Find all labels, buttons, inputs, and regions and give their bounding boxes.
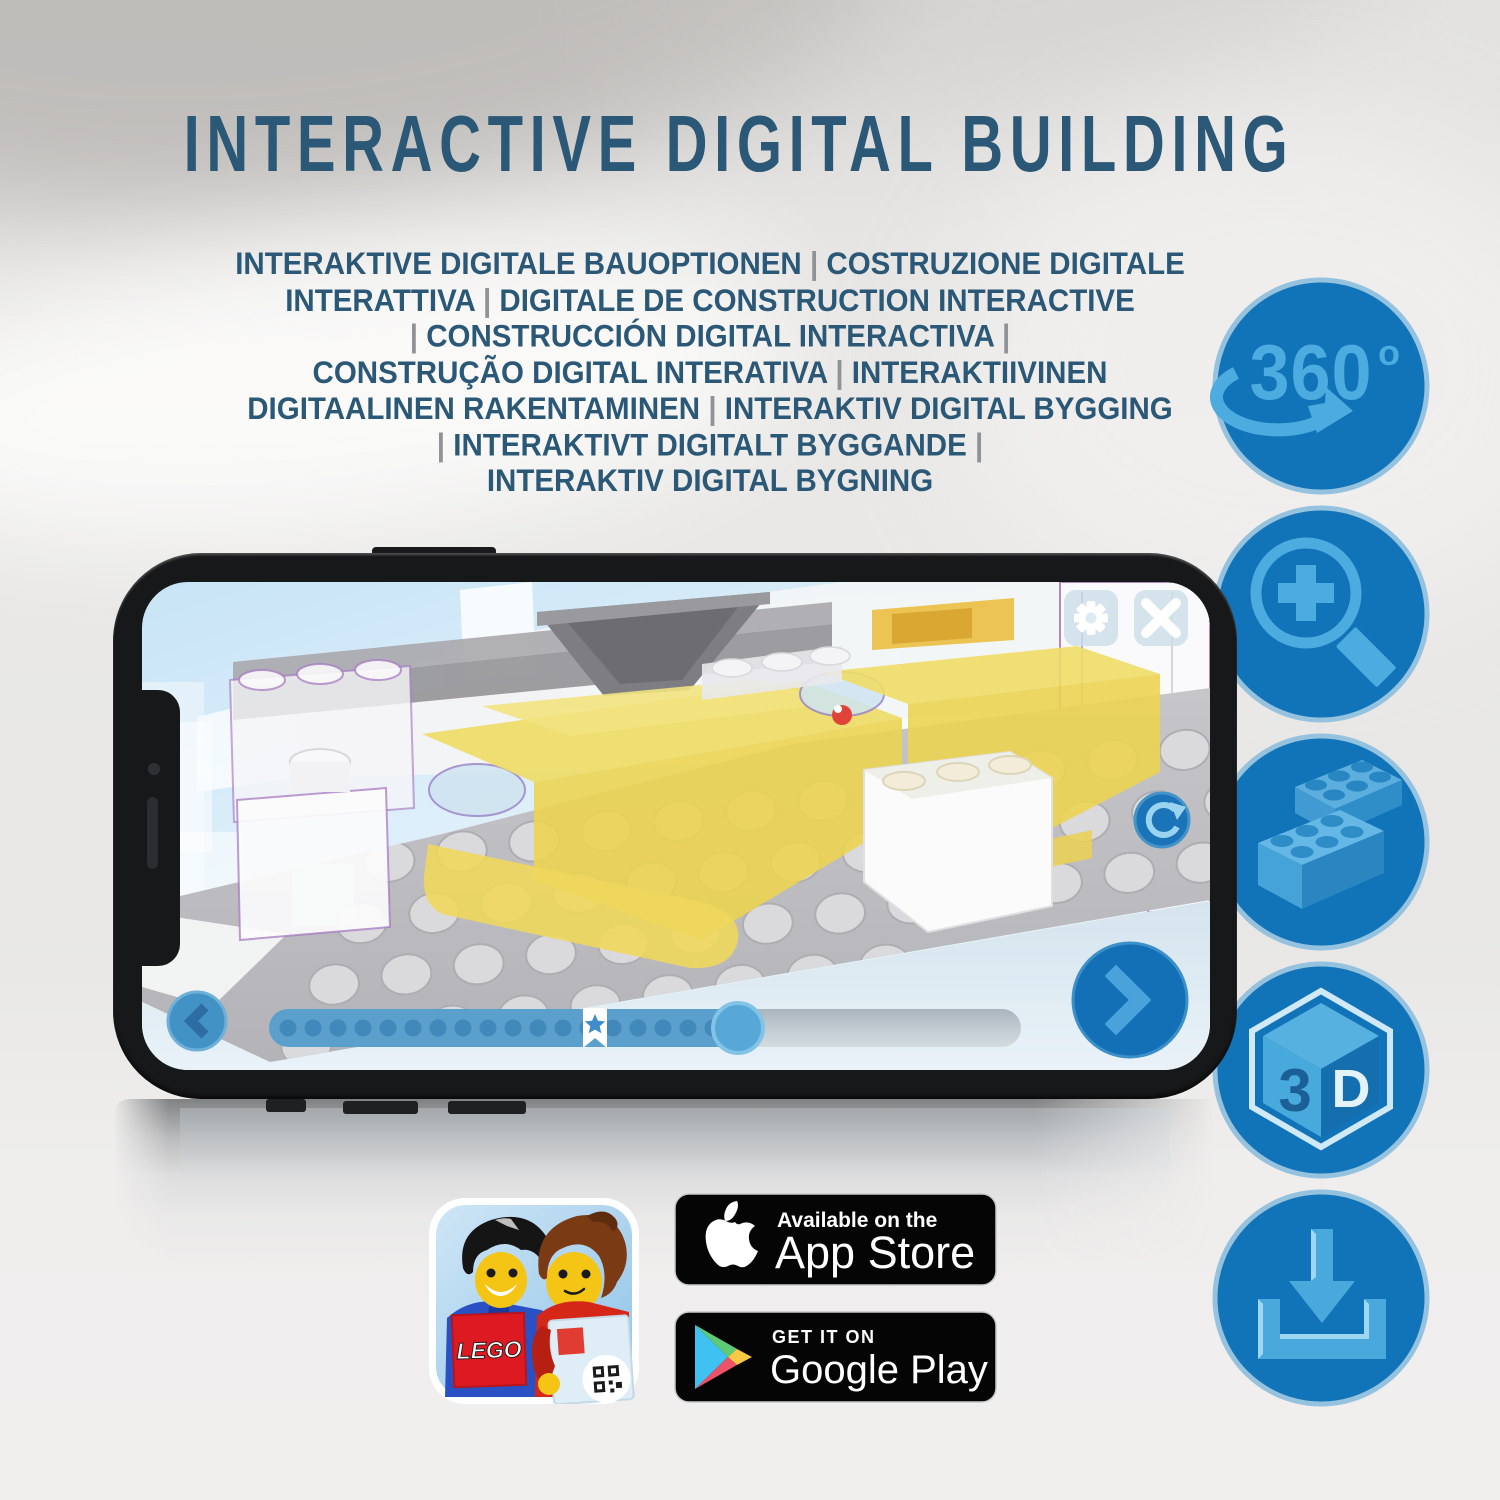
svg-text:o: o bbox=[1378, 332, 1400, 373]
svg-text:App Store: App Store bbox=[775, 1227, 975, 1278]
svg-text:LEGO: LEGO bbox=[456, 1336, 522, 1364]
svg-text:360: 360 bbox=[1249, 329, 1372, 416]
svg-text:GET IT ON: GET IT ON bbox=[772, 1327, 876, 1347]
svg-text:D: D bbox=[1332, 1059, 1371, 1119]
svg-text:Google Play: Google Play bbox=[770, 1348, 988, 1392]
svg-text:3: 3 bbox=[1278, 1057, 1311, 1124]
